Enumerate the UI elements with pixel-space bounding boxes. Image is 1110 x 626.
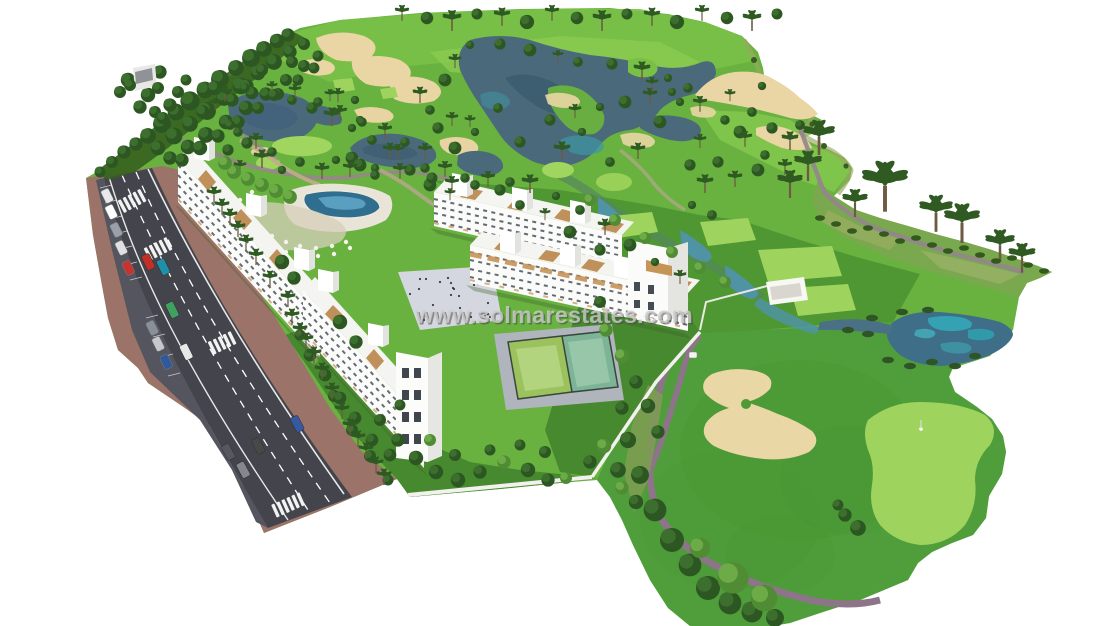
- svg-text:www.solmarestates.com: www.solmarestates.com: [414, 302, 693, 328]
